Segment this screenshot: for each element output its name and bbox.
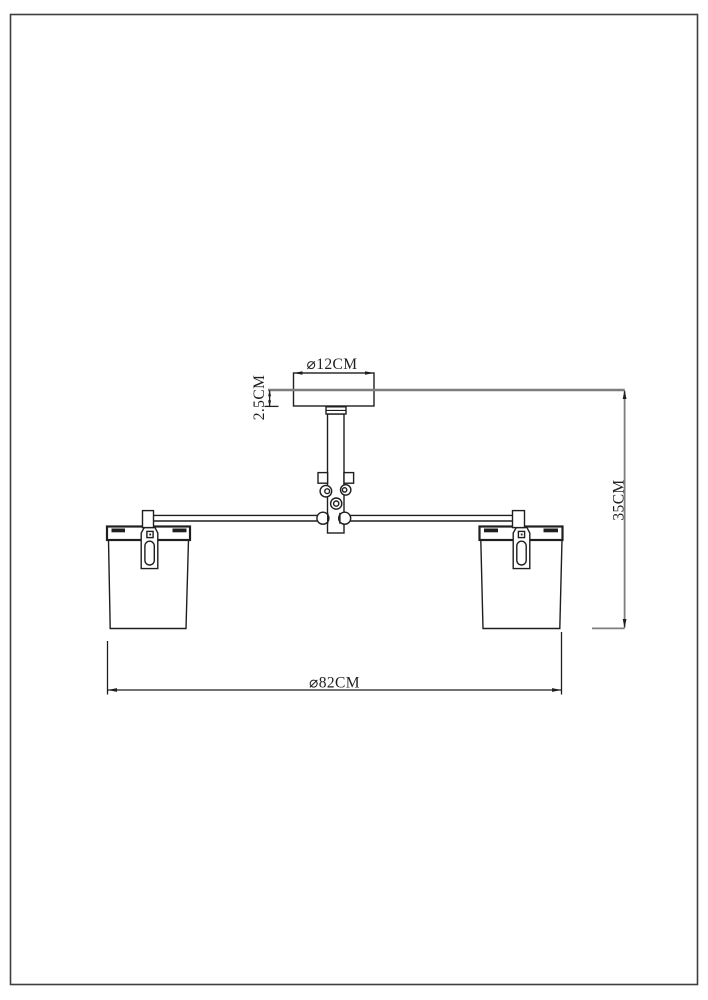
right-shade-stem (513, 511, 525, 528)
ceiling-lamp-technical-drawing: ⌀82CM (0, 0, 708, 1000)
arrowhead-left (108, 688, 118, 692)
canopy-diameter-label: ⌀12CM (307, 356, 358, 373)
side-tab-right (344, 473, 354, 484)
overall-height-dimension: 35CM (592, 390, 628, 629)
center-knob (331, 498, 342, 509)
arrowhead-down (623, 619, 627, 628)
left-cap-mark-right (173, 529, 187, 533)
drawing-border (11, 15, 698, 985)
canopy-diameter-dimension: ⌀12CM (294, 356, 375, 375)
downrod-assembly (317, 407, 354, 533)
right-cap-mark-left (484, 529, 498, 533)
left-lamp-shade (107, 527, 190, 629)
canopy-height-dimension: 2.5CM (251, 375, 279, 421)
right-cap-mark-right (544, 529, 559, 533)
left-holder-slot (145, 541, 154, 565)
overall-diameter-dimension: ⌀82CM (108, 632, 562, 695)
technical-drawing-page: ⌀82CM (0, 0, 708, 1000)
left-cap-mark-left (112, 529, 126, 533)
arrowhead-right (552, 688, 562, 692)
overall-diameter-label: ⌀82CM (309, 675, 360, 692)
right-lamp-shade (480, 527, 563, 629)
right-holder-slot (517, 541, 526, 565)
left-holder-screw (149, 534, 151, 536)
arrowhead-down (268, 400, 271, 406)
overall-height-label: 35CM (611, 479, 628, 520)
right-holder-screw (521, 534, 523, 536)
left-shade-stem (143, 511, 154, 528)
canopy-height-label: 2.5CM (251, 375, 268, 421)
side-tab-left (318, 473, 328, 484)
